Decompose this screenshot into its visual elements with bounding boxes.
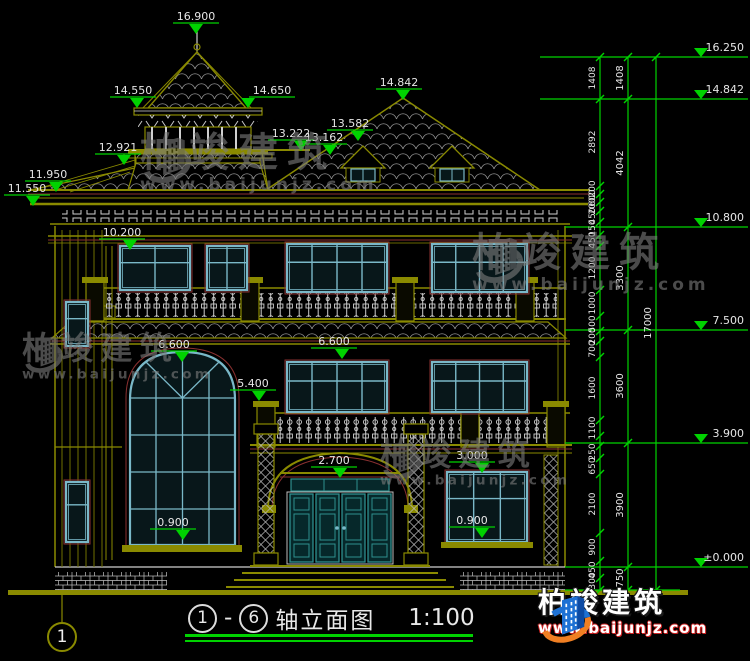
window-sill [122, 545, 242, 552]
door-leaves [290, 494, 391, 562]
plinth-brick-left [55, 572, 167, 590]
svg-text:3.000: 3.000 [456, 449, 488, 462]
svg-text:16.900: 16.900 [177, 10, 216, 23]
svg-text:3900: 3900 [615, 492, 626, 517]
svg-text:750: 750 [615, 568, 626, 587]
brand-logo-icon [538, 588, 598, 652]
svg-text:5.400: 5.400 [237, 377, 269, 390]
level-line: 16.250 [540, 41, 748, 57]
window [205, 244, 249, 292]
svg-text:1600: 1600 [588, 376, 598, 399]
elevation-marker: 14.550 [110, 84, 156, 108]
dentil-row [62, 210, 558, 222]
title-underline-thick [185, 634, 473, 637]
window [64, 480, 90, 544]
svg-text:1100: 1100 [588, 416, 598, 439]
entrance [226, 424, 454, 587]
elevation-marker: 12.921 [95, 141, 141, 165]
axis-start-bubble: 1 [188, 604, 217, 633]
turret-cone [148, 52, 246, 108]
svg-text:7.500: 7.500 [713, 314, 745, 327]
dimension-chain: 17000 [643, 53, 660, 594]
door-handle [335, 526, 339, 530]
svg-text:1200: 1200 [588, 256, 598, 279]
svg-text:2.700: 2.700 [318, 454, 350, 467]
svg-text:14.842: 14.842 [380, 76, 419, 89]
svg-text:14.550: 14.550 [114, 84, 153, 97]
svg-text:11.550: 11.550 [8, 182, 47, 195]
window [118, 244, 192, 292]
svg-text:1000: 1000 [588, 291, 598, 314]
corner-pilaster [544, 455, 558, 565]
svg-text:6.600: 6.600 [318, 335, 350, 348]
svg-text:1408: 1408 [588, 66, 598, 89]
turret-brackets [138, 115, 258, 127]
svg-text:900: 900 [588, 538, 598, 555]
svg-text:6.600: 6.600 [158, 338, 190, 351]
window [441, 470, 533, 548]
window-sill [441, 542, 533, 548]
title-underline-thin [185, 640, 473, 642]
window [285, 242, 389, 294]
svg-text:0.900: 0.900 [157, 516, 189, 529]
svg-text:650: 650 [588, 457, 598, 474]
turret [124, 30, 272, 190]
svg-text:3.900: 3.900 [713, 427, 745, 440]
svg-text:11.950: 11.950 [29, 168, 68, 181]
svg-text:700: 700 [588, 340, 598, 357]
svg-text:3600: 3600 [615, 373, 626, 398]
svg-text:10.200: 10.200 [103, 226, 142, 239]
main-eave-band [28, 190, 590, 224]
canopy-3f [52, 322, 566, 338]
title-scale: 1:100 [408, 605, 474, 631]
svg-text:13.582: 13.582 [331, 117, 370, 130]
window [430, 242, 529, 294]
elevation-marker: 5.400 [230, 377, 276, 401]
svg-text:17000: 17000 [643, 307, 654, 339]
entrance-steps [226, 566, 454, 587]
brand-logo: 柏竣建筑 www.baijunjz.com [538, 588, 707, 637]
drawing-title: 1 - 6 轴立面图 1:100 [188, 601, 475, 635]
elevation-marker: 14.650 [241, 84, 295, 108]
elevation-marker: 11.550 [4, 182, 50, 206]
cad-elevation-screenshot: 16.90014.55014.65012.92113.22213.16213.5… [0, 0, 750, 661]
svg-text:3300: 3300 [615, 265, 626, 290]
axis-end-bubble: 6 [239, 604, 268, 633]
title-separator: - [224, 605, 232, 631]
svg-text:10.800: 10.800 [706, 211, 745, 224]
svg-text:1408: 1408 [615, 65, 626, 90]
axis-bubble-1: 1 [47, 622, 77, 652]
svg-text:2892: 2892 [588, 131, 598, 154]
window [285, 360, 389, 414]
window [430, 360, 529, 414]
dimension-chain: 14084042330036003900750 [615, 53, 632, 594]
elevation-marker: 16.900 [173, 10, 219, 34]
svg-text:4042: 4042 [615, 150, 626, 175]
dimension-chain: 1408289220060020045015045012001000500200… [588, 53, 604, 594]
svg-text:12.921: 12.921 [99, 141, 138, 154]
svg-text:±0.000: ±0.000 [703, 551, 744, 564]
level-line: 14.842 [540, 83, 748, 99]
svg-text:2100: 2100 [588, 492, 598, 515]
door-handle [342, 526, 346, 530]
title-text: 轴立面图 [275, 601, 375, 635]
svg-text:16.250: 16.250 [706, 41, 745, 54]
elevation-marker: 14.842 [376, 76, 422, 100]
svg-text:450: 450 [588, 231, 598, 248]
svg-text:14.842: 14.842 [706, 83, 745, 96]
svg-text:0.900: 0.900 [456, 514, 488, 527]
building-elevation-drawing: 16.90014.55014.65012.92113.22213.16213.5… [0, 0, 750, 661]
svg-text:14.650: 14.650 [253, 84, 292, 97]
svg-text:13.162: 13.162 [305, 131, 344, 144]
window [64, 300, 90, 348]
